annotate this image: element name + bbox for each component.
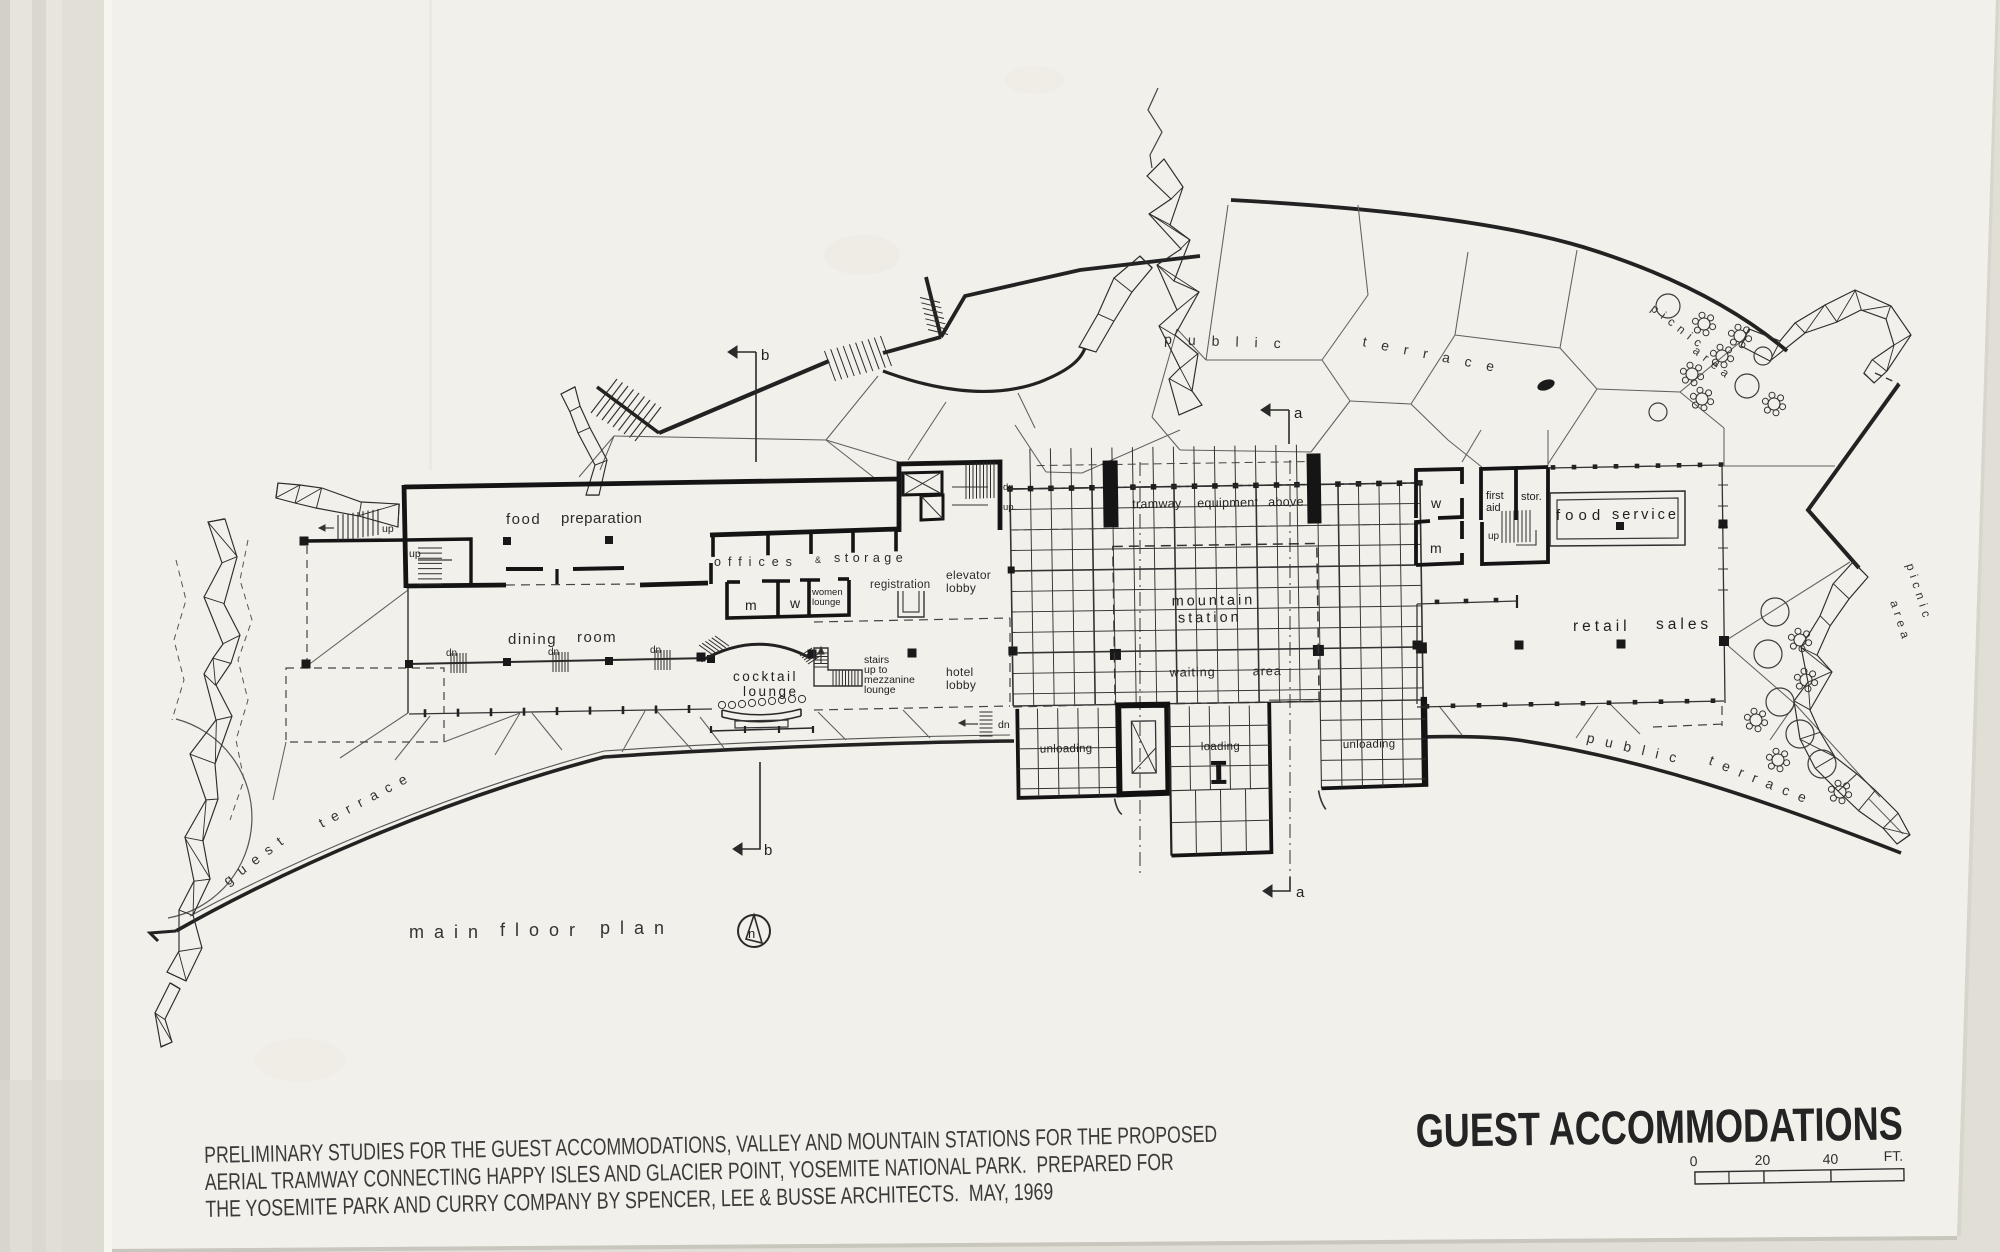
svg-text:GUEST ACCOMMODATIONS: GUEST ACCOMMODATIONS bbox=[1415, 1096, 1903, 1157]
svg-text:w: w bbox=[789, 595, 801, 611]
svg-text:FT.: FT. bbox=[1884, 1148, 1904, 1164]
svg-text:b: b bbox=[764, 842, 772, 859]
svg-text:elevator: elevator bbox=[946, 568, 991, 582]
svg-text:floor: floor bbox=[500, 920, 585, 940]
svg-text:food: food bbox=[1556, 507, 1605, 524]
svg-text:40: 40 bbox=[1823, 1151, 1839, 1167]
svg-text:tramway: tramway bbox=[1132, 496, 1182, 511]
svg-text:&: & bbox=[815, 555, 821, 565]
svg-text:m: m bbox=[745, 597, 757, 613]
svg-text:area: area bbox=[1253, 664, 1282, 678]
svg-text:registration: registration bbox=[870, 579, 931, 591]
svg-text:sales: sales bbox=[1656, 616, 1712, 633]
svg-text:main: main bbox=[409, 922, 488, 942]
svg-text:equipment: equipment bbox=[1197, 495, 1259, 510]
svg-text:dn: dn bbox=[548, 647, 559, 658]
svg-text:waiting: waiting bbox=[1169, 665, 1216, 680]
svg-text:w: w bbox=[1430, 495, 1442, 511]
svg-text:service: service bbox=[1612, 507, 1679, 523]
svg-text:a: a bbox=[1296, 884, 1305, 901]
svg-text:food: food bbox=[506, 511, 541, 528]
svg-text:lobby: lobby bbox=[946, 678, 976, 692]
svg-text:room: room bbox=[577, 629, 617, 646]
svg-text:lounge: lounge bbox=[864, 684, 896, 696]
svg-text:retail: retail bbox=[1573, 618, 1631, 635]
svg-text:dn: dn bbox=[650, 645, 661, 656]
svg-text:dn: dn bbox=[446, 648, 457, 659]
svg-text:up: up bbox=[382, 523, 394, 535]
svg-text:hotel: hotel bbox=[946, 665, 974, 679]
svg-text:20: 20 bbox=[1755, 1152, 1771, 1168]
svg-text:up: up bbox=[409, 548, 421, 560]
svg-text:b: b bbox=[761, 347, 769, 364]
svg-text:dn: dn bbox=[998, 719, 1010, 731]
svg-text:m: m bbox=[1430, 540, 1442, 556]
svg-text:preparation: preparation bbox=[561, 510, 642, 527]
svg-text:offices: offices bbox=[714, 555, 799, 569]
svg-text:station: station bbox=[1178, 610, 1242, 627]
svg-text:unloading: unloading bbox=[1343, 738, 1396, 751]
svg-text:stor.: stor. bbox=[1521, 491, 1542, 503]
svg-text:unloading: unloading bbox=[1040, 743, 1093, 756]
svg-text:plan: plan bbox=[600, 918, 674, 938]
svg-text:0: 0 bbox=[1690, 1153, 1698, 1169]
svg-text:storage: storage bbox=[834, 551, 907, 565]
svg-text:mountain: mountain bbox=[1172, 592, 1256, 609]
svg-text:above: above bbox=[1268, 495, 1304, 510]
svg-text:up: up bbox=[1488, 531, 1500, 542]
svg-text:cocktail: cocktail bbox=[733, 669, 798, 684]
svg-text:n: n bbox=[748, 926, 755, 941]
svg-text:dining: dining bbox=[508, 631, 557, 648]
svg-text:a: a bbox=[1294, 405, 1303, 422]
svg-text:lounge: lounge bbox=[743, 684, 799, 699]
svg-text:up: up bbox=[1003, 502, 1014, 513]
svg-text:lounge: lounge bbox=[812, 597, 841, 608]
svg-text:aid: aid bbox=[1486, 502, 1501, 514]
svg-text:loading: loading bbox=[1201, 741, 1240, 754]
svg-text:first: first bbox=[1486, 490, 1504, 502]
svg-text:lobby: lobby bbox=[946, 581, 976, 595]
